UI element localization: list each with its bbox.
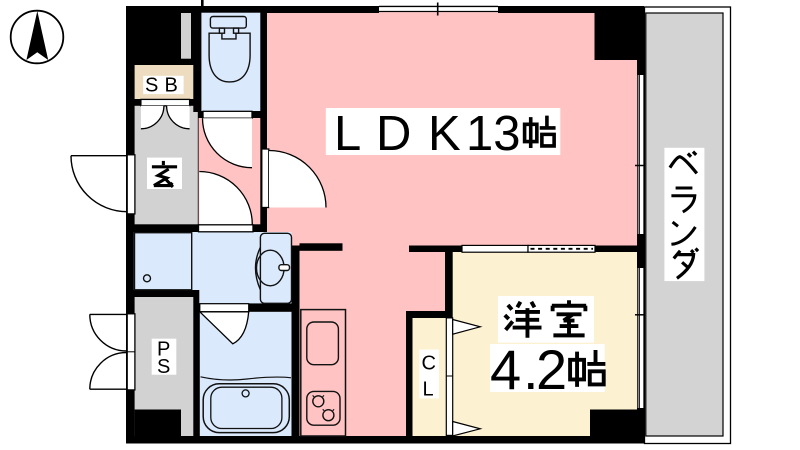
- svg-text:4: 4: [490, 338, 521, 401]
- svg-text:K: K: [428, 107, 461, 161]
- svg-text:C: C: [422, 353, 436, 375]
- svg-text:S: S: [145, 75, 158, 97]
- svg-text:L: L: [423, 379, 434, 401]
- svg-text:13: 13: [466, 107, 521, 161]
- svg-text:2: 2: [536, 338, 567, 401]
- svg-text:S: S: [157, 356, 170, 378]
- svg-text:D: D: [376, 107, 411, 161]
- svg-text:L: L: [334, 107, 361, 161]
- svg-text:B: B: [165, 75, 178, 97]
